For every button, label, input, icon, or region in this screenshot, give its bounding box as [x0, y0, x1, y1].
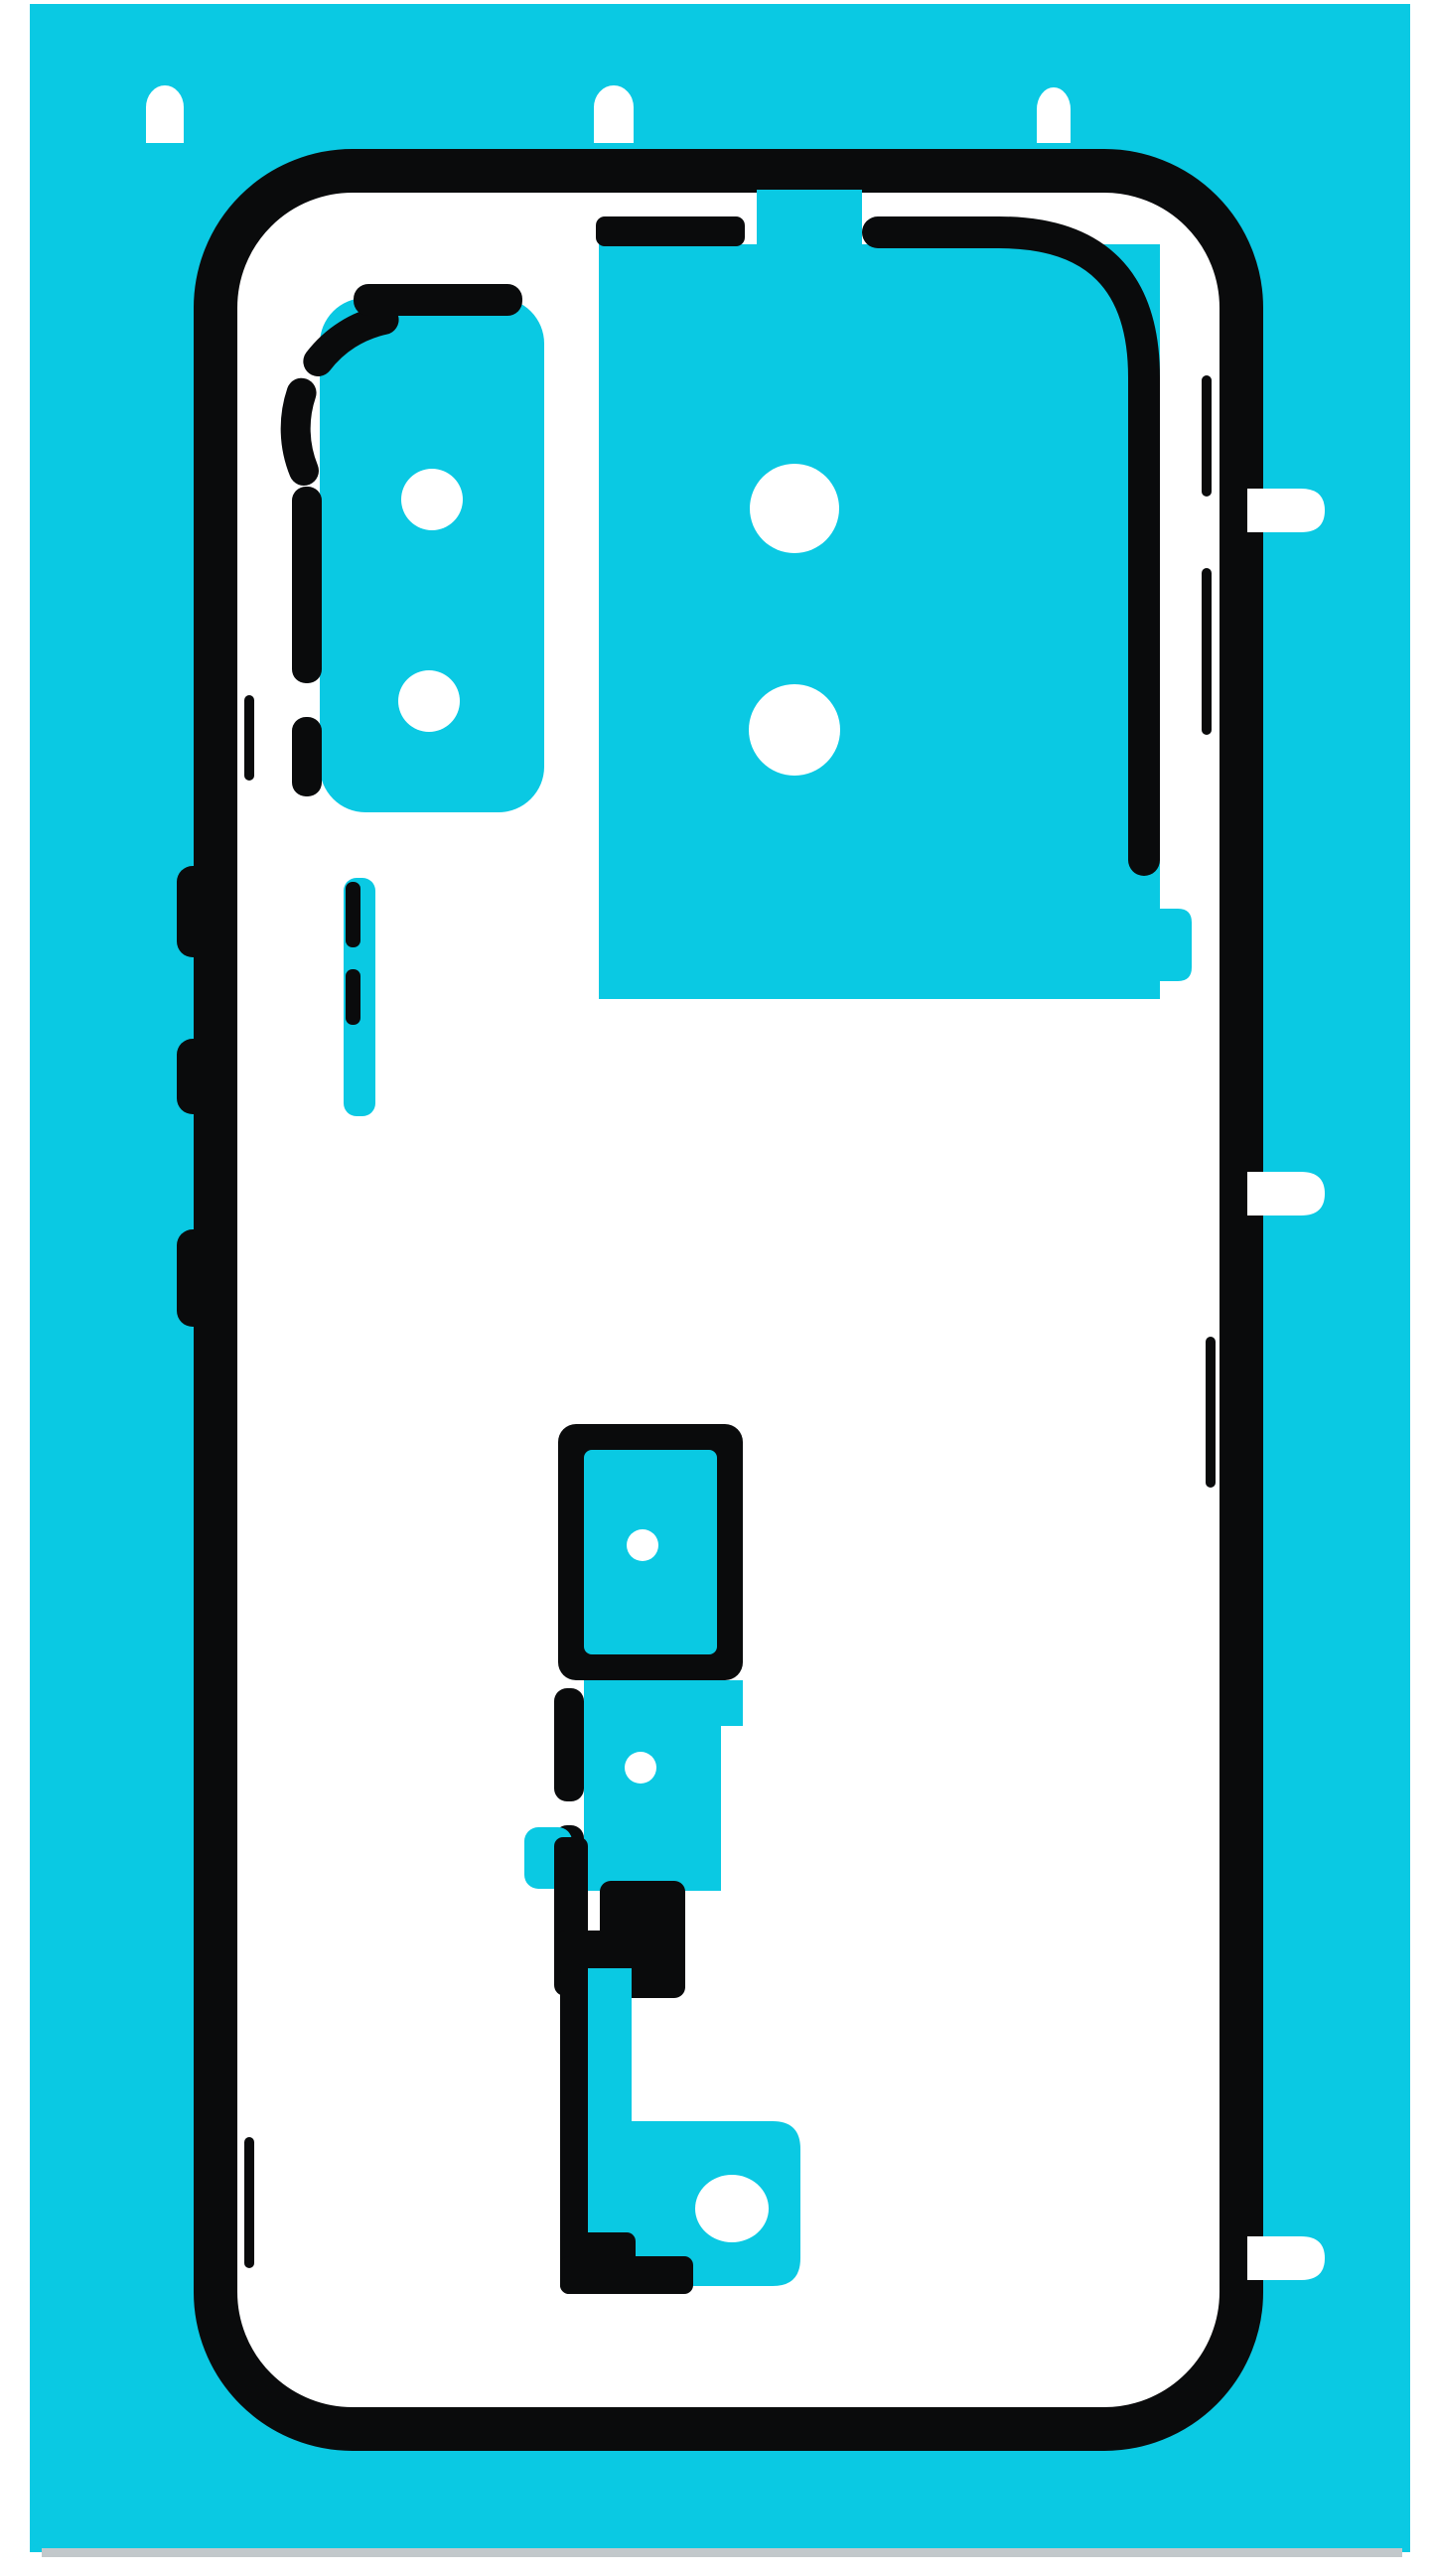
camera-lens-hole-large — [750, 464, 839, 553]
alignment-tab-cutout — [146, 85, 184, 143]
pad-left-dash-cut — [292, 717, 322, 796]
button-strip-dash — [346, 969, 360, 1025]
left-camera-pad-body — [320, 298, 544, 812]
main-camera-pad-side-step — [1160, 909, 1192, 981]
screw-hole — [625, 1752, 656, 1784]
cluster-middle-pad — [584, 1680, 721, 1891]
pull-tab — [1247, 489, 1325, 532]
speaker-hole — [695, 2175, 769, 2242]
gasket-inner-score-mark — [1202, 568, 1212, 735]
camera-lens-hole — [401, 469, 463, 530]
main-camera-pad-body — [599, 244, 1160, 999]
screw-hole — [627, 1529, 658, 1561]
gasket-inner-score-mark — [1206, 1337, 1216, 1488]
cluster-left-dash-cut — [554, 1688, 584, 1801]
gasket-inner-score-mark — [244, 2137, 254, 2268]
pull-tab — [1247, 2236, 1325, 2280]
gasket-inner-score-mark — [1202, 375, 1212, 497]
sheet-bottom-edge-shadow — [42, 2548, 1402, 2557]
camera-lens-hole-large — [749, 684, 840, 776]
camera-lens-hole — [398, 670, 460, 732]
pad-top-dash-cut — [354, 284, 522, 316]
pad-top-cut-bar — [596, 216, 745, 246]
cluster-bottom-border — [560, 1964, 588, 2264]
gasket-inner-score-mark — [244, 695, 254, 781]
left-camera-adhesive-pad — [292, 284, 544, 812]
side-button-adhesive-strip — [344, 878, 375, 1116]
main-camera-adhesive-pad — [596, 190, 1192, 999]
product-photo — [0, 0, 1435, 2576]
cluster-bottom-border — [560, 2256, 693, 2294]
adhesive-sheet-photo — [0, 0, 1435, 2576]
pull-tab — [1247, 1172, 1325, 1216]
cluster-middle-pad-step — [721, 1680, 743, 1726]
alignment-tab-cutout — [1037, 87, 1071, 143]
pad-left-dash-cut — [292, 487, 322, 683]
button-strip-dash — [346, 882, 360, 947]
alignment-tab-cutout — [594, 85, 634, 143]
main-camera-pad-notch — [757, 190, 862, 269]
